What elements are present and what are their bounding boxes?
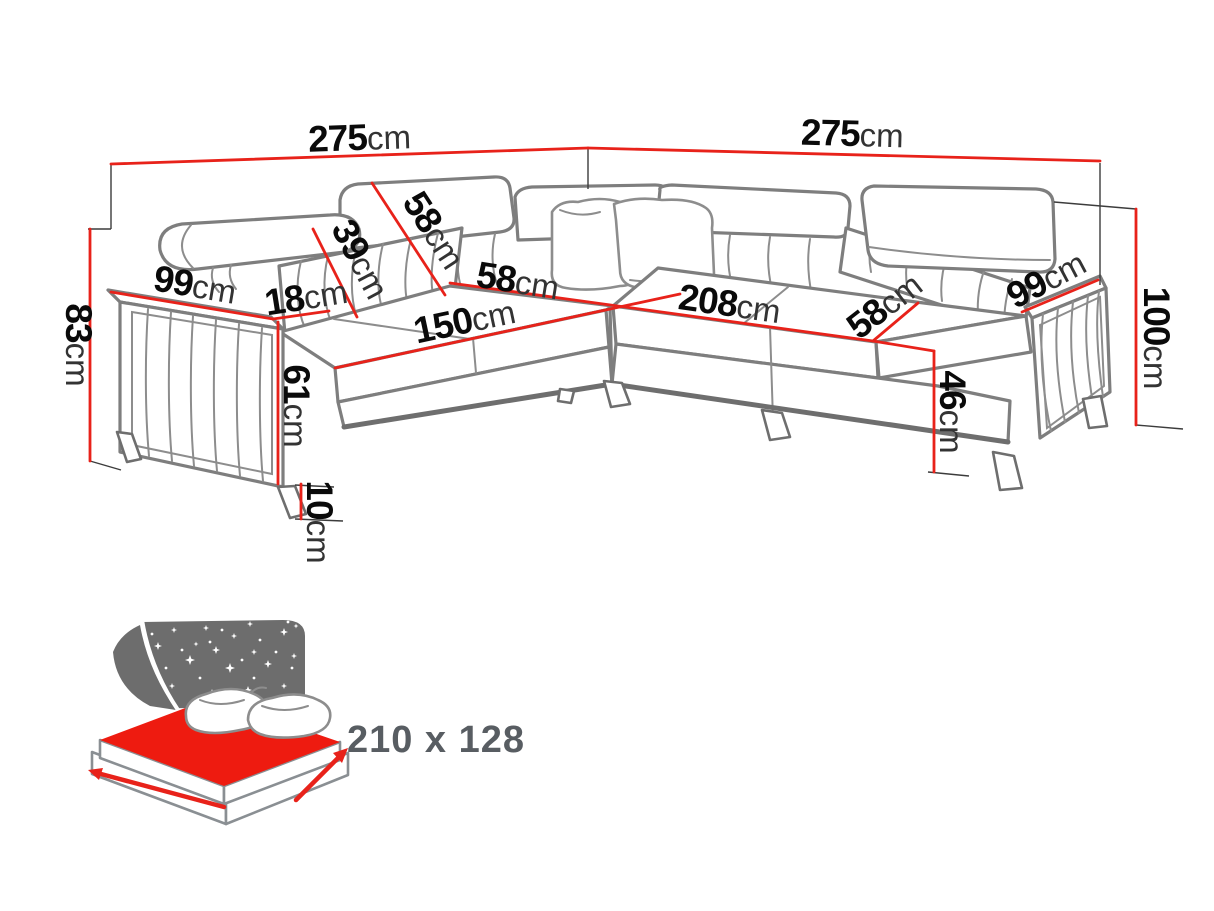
dim-seat-height-right-label: 46cm: [932, 370, 973, 453]
dim-total-width-right-label: 275cm: [800, 112, 904, 156]
furniture-dimension-diagram: 275cm 275cm 83cm 99cm 18cm 61cm 10cm 39c…: [0, 0, 1214, 911]
dim-height-left-label: 83cm: [58, 303, 99, 386]
bed-size-label: 210 x 128: [347, 719, 525, 761]
dim-seat-height-left-label: 61cm: [276, 364, 317, 447]
corner-vertical-edge: [610, 308, 612, 384]
dim-leg-height-label: 10cm: [299, 480, 340, 563]
dim-height-right-label: 100cm: [1136, 287, 1177, 390]
headrest-right: [862, 186, 1055, 272]
leg-mid-right: [762, 410, 790, 440]
leg-corner-small: [558, 389, 574, 403]
corner-sofa-diagram: 275cm 275cm 83cm 99cm 18cm 61cm 10cm 39c…: [0, 0, 1214, 911]
leg-front-right: [993, 452, 1022, 490]
sofa-drawing: [108, 177, 1110, 518]
dim-total-width-left-label: 275cm: [308, 115, 412, 160]
bed-sleeping-area-icon: 210 x 128: [88, 618, 525, 824]
leg-arm-right: [1083, 396, 1107, 428]
